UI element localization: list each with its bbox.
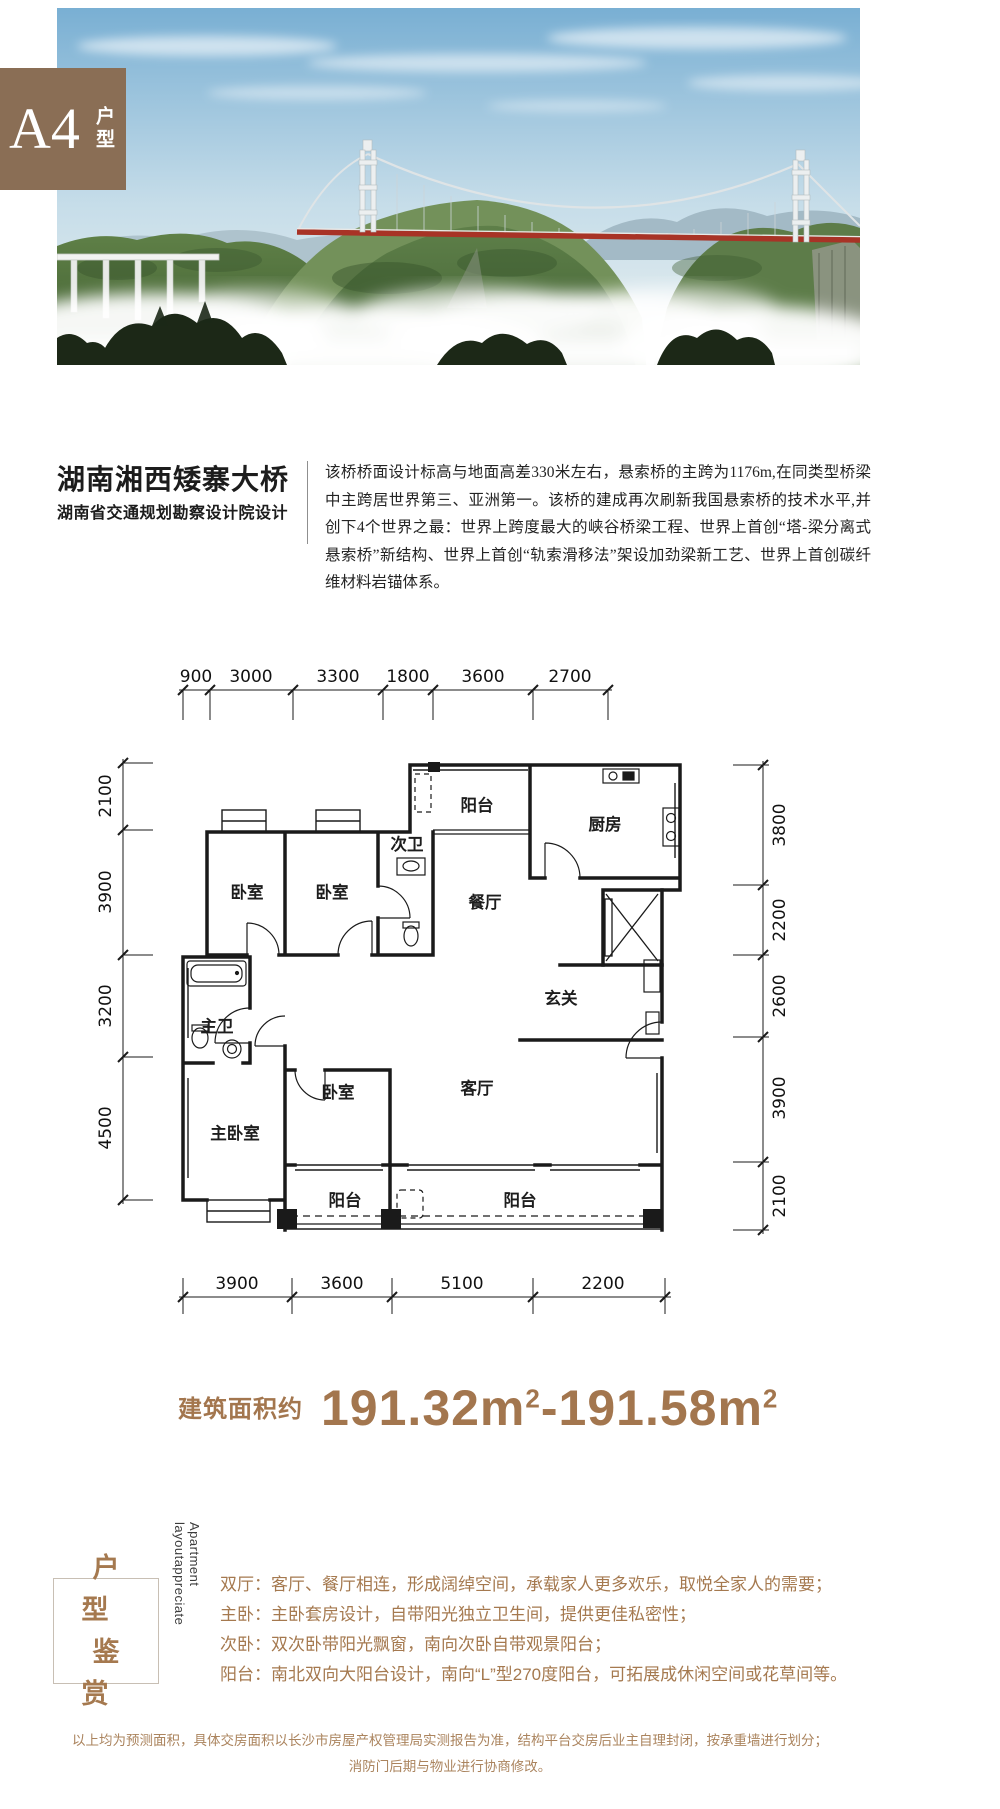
room-labels: 阳台 厨房 次卫 餐厅 卧室 卧室 主卫 玄关 主卧室 卧室 客厅 阳台 阳台 [201,795,622,1210]
dim-right-2: 2600 [770,974,790,1017]
dim-left-3: 4500 [96,1106,116,1149]
appreciation-list: 双厅：客厅、餐厅相连，形成阔绰空间，承载家人更多欢乐，取悦全家人的需要； 主卧：… [220,1570,940,1690]
room-label-balcony-top: 阳台 [461,795,494,815]
floorplan: 900 3000 3300 1800 3600 2700 2100 3900 3… [95,618,795,1330]
dim-right-0: 3800 [770,803,790,846]
dim-top-3: 1800 [386,667,429,687]
dim-bottom-1: 3600 [320,1274,363,1294]
room-label-bedroom-2: 卧室 [316,882,349,902]
dim-left-1: 3900 [96,870,116,913]
room-label-second-bath: 次卫 [391,834,424,854]
brochure-page: A4 户型 湖南湘西矮寨大桥 湖南省交通规划勘察设计院设计 该桥桥面设计标高与地… [0,0,1000,1809]
bridge-photo [57,8,860,365]
room-label-bedroom-1: 卧室 [231,882,264,902]
room-label-balcony-bl: 阳台 [329,1190,362,1210]
room-label-balcony-br: 阳台 [504,1190,537,1210]
unit-code: A4 [9,100,80,158]
dim-left-0: 2100 [96,774,116,817]
list-item: 阳台：南北双向大阳台设计，南向“L”型270度阳台，可拓展成休闲空间或花草间等。 [220,1660,940,1690]
disclaimer-line1: 以上均为预测面积，具体交房面积以长沙市房屋产权管理局实测报告为准，结构平台交房后… [0,1728,900,1754]
dim-bottom-0: 3900 [215,1274,258,1294]
dim-left-2: 3200 [96,984,116,1027]
dim-bottom-2: 5100 [440,1274,483,1294]
elevator-shaft [603,890,662,965]
appreciation-box-line2: 鉴赏 [54,1631,158,1715]
room-label-foyer: 玄关 [545,988,579,1008]
bridge-photo-illustration [57,8,860,365]
floor-area: 建筑面积约 191.32m2-191.58m2 [178,1383,778,1433]
floorplan-drawing: 900 3000 3300 1800 3600 2700 2100 3900 3… [95,618,795,1330]
bridge-title: 湖南湘西矮寨大桥 [57,458,289,498]
list-item: 主卧：主卧套房设计，自带阳光独立卫生间，提供更佳私密性； [220,1600,940,1630]
unit-type-badge: A4 户型 [0,68,126,190]
disclaimer: 以上均为预测面积，具体交房面积以长沙市房屋产权管理局实测报告为准，结构平台交房后… [0,1728,900,1780]
disclaimer-line2: 消防门后期与物业进行协商修改。 [0,1754,900,1780]
room-label-dining: 餐厅 [469,892,503,912]
room-label-master-bedroom: 主卧室 [210,1123,260,1143]
room-label-master-bath: 主卫 [201,1016,234,1036]
vertical-divider [307,461,308,544]
dim-top-1: 3000 [229,667,272,687]
list-item: 双厅：客厅、餐厅相连，形成阔绰空间，承载家人更多欢乐，取悦全家人的需要； [220,1570,940,1600]
appreciation-box: 户型 鉴赏 [53,1578,159,1684]
dim-top-4: 3600 [461,667,504,687]
dim-top-5: 2700 [548,667,591,687]
bridge-subtitle: 湖南省交通规划勘察设计院设计 [57,499,288,523]
dim-top-2: 3300 [316,667,359,687]
dim-bottom-3: 2200 [581,1274,624,1294]
room-label-kitchen: 厨房 [589,814,622,834]
appreciation-side-text: Apartment layoutappreciate [172,1522,202,1690]
walls [183,765,680,1230]
dimension-ticks [118,685,768,1302]
room-label-bedroom-3: 卧室 [322,1082,355,1102]
dim-right-3: 3900 [770,1076,790,1119]
dim-right-1: 2200 [770,898,790,941]
area-label: 建筑面积约 [178,1389,303,1433]
area-value: 191.32m2-191.58m2 [321,1383,778,1433]
bridge-description: 该桥桥面设计标高与地面高差330米左右，悬索桥的主跨为1176m,在同类型桥梁中… [325,459,871,597]
dim-top-0: 900 [180,667,212,687]
room-label-living: 客厅 [460,1078,495,1098]
appreciation-box-line1: 户型 [54,1547,158,1631]
list-item: 次卧：双次卧带阳光飘窗，南向次卧自带观景阳台； [220,1630,940,1660]
unit-type-label: 户型 [90,106,117,152]
dimension-lines [123,690,769,1314]
dim-right-4: 2100 [770,1174,790,1217]
